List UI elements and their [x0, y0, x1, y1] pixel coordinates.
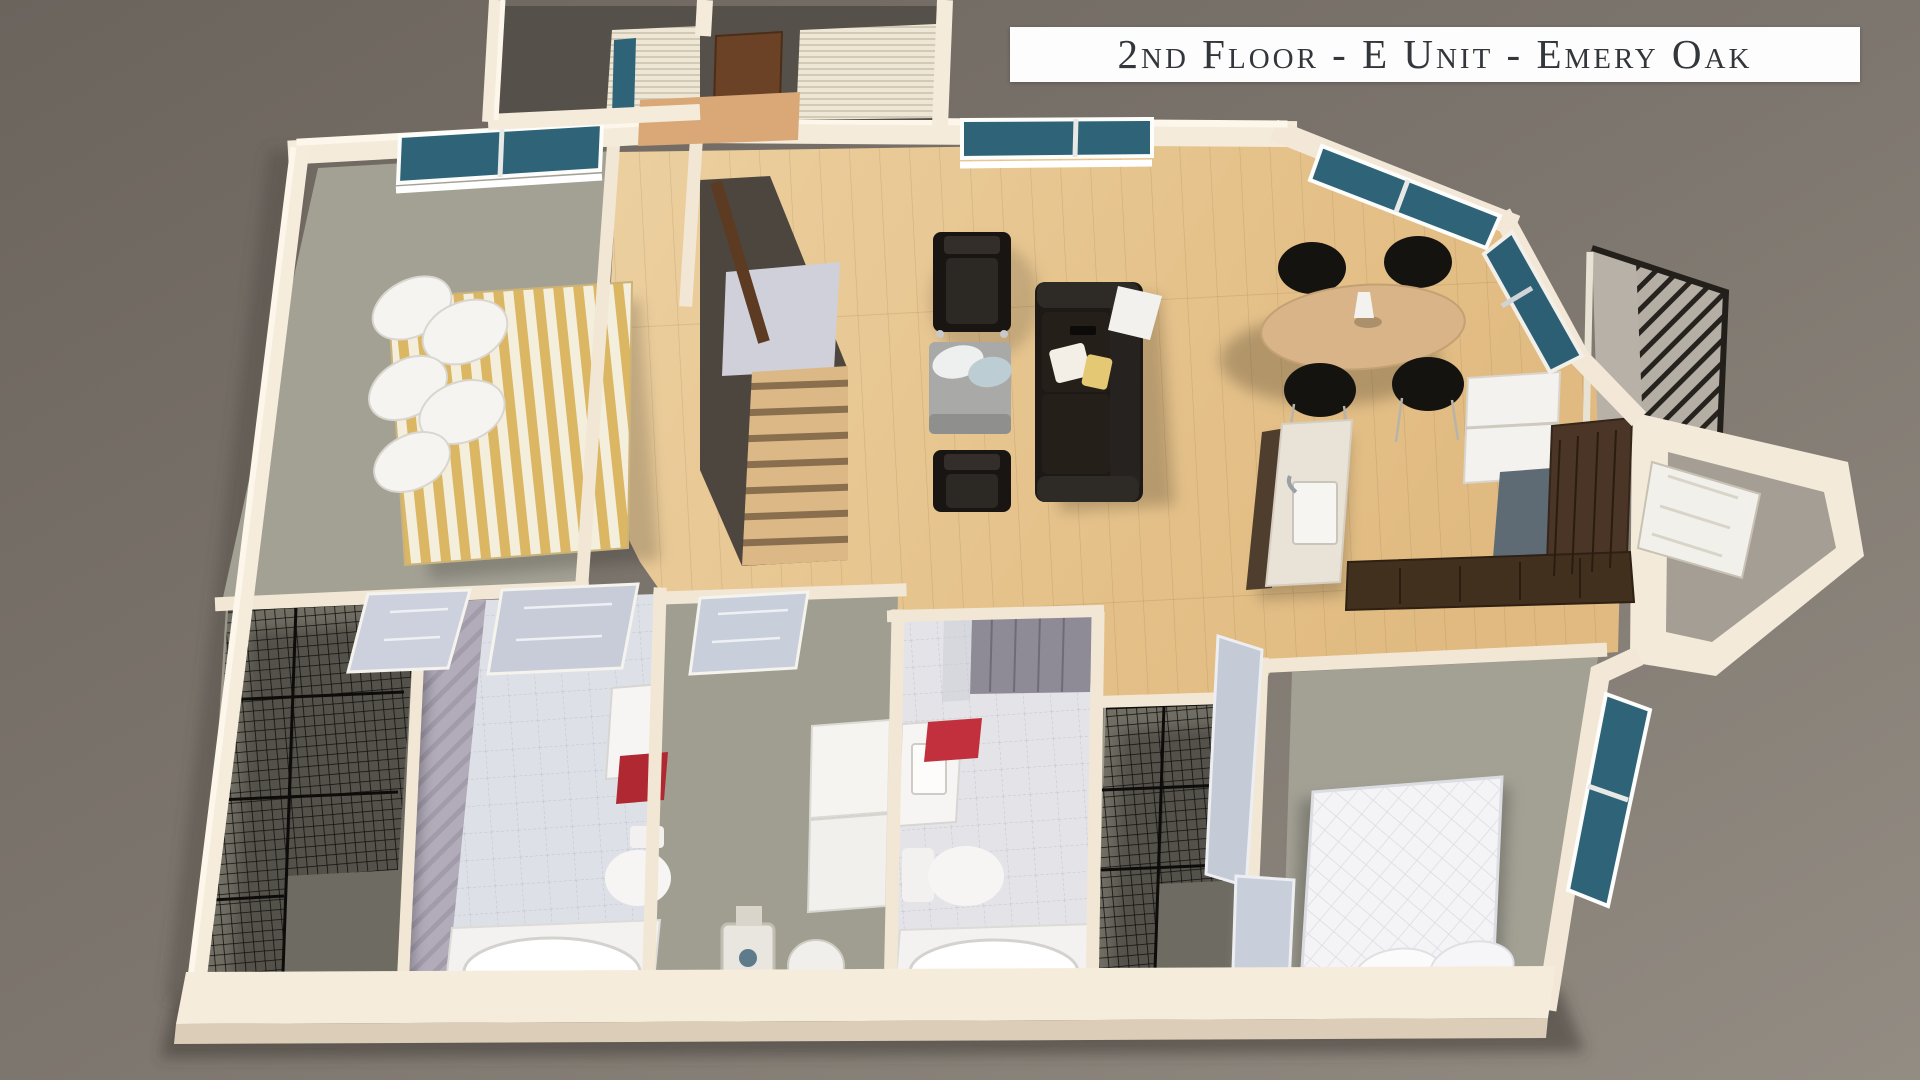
armchair-foot: [1000, 330, 1008, 338]
balcony-curb: [1586, 252, 1590, 444]
door-laundry: [690, 592, 808, 674]
window-bedroom-1: [396, 124, 602, 190]
wall-laundry-bath2: [890, 616, 898, 1000]
island-sink: [1293, 482, 1337, 544]
window-sill: [960, 163, 1152, 165]
sofa-remote: [1070, 326, 1096, 335]
window-living: [960, 119, 1152, 165]
toilet-2-bowl: [928, 846, 1004, 906]
window-glass: [962, 119, 1152, 158]
stair-block-shutter-right: [796, 24, 936, 120]
sofa: [1035, 282, 1175, 512]
floorplan-render: [0, 0, 1920, 1080]
ottoman-side: [929, 414, 1011, 434]
door-closet-1: [348, 590, 470, 672]
bedroom-1-bed: [358, 264, 660, 580]
title-banner: 2nd Floor - E Unit - Emery Oak: [1010, 27, 1860, 82]
armchair-foot: [936, 330, 944, 338]
armchair-back: [944, 236, 1000, 254]
ottoman: [929, 340, 1014, 434]
armchair-bottom: [933, 450, 1011, 512]
shower-2: [970, 612, 1094, 694]
sofa-arm-bottom: [1037, 476, 1139, 502]
toilet-1-bowl: [605, 850, 671, 906]
window-mullion: [500, 129, 502, 177]
kitchen-counter-horizontal: [1346, 552, 1634, 610]
wall-bottom: [176, 966, 1556, 1024]
water-heater-top: [736, 906, 762, 926]
door-bathroom-1: [488, 584, 638, 674]
title-banner-text: 2nd Floor - E Unit - Emery Oak: [1118, 34, 1753, 75]
armchair-back: [944, 454, 1000, 470]
sofa-cushion: [1042, 394, 1110, 474]
stairs: [742, 366, 848, 566]
dryer: [808, 814, 888, 912]
washer: [810, 720, 890, 818]
window-stair-sliver: [612, 38, 636, 116]
shower-2-glass: [942, 617, 972, 702]
window-mullion: [1075, 119, 1076, 157]
armchair-seat: [946, 258, 998, 324]
towel-red-2: [924, 718, 982, 762]
dining-chair: [1278, 242, 1346, 294]
floorplan-scene: 2nd Floor - E Unit - Emery Oak: [0, 0, 1920, 1080]
wall-bath2-closet2: [1092, 618, 1098, 1000]
armchair-seat: [946, 474, 998, 508]
dining-chair: [1384, 236, 1452, 288]
water-heater-dial: [739, 949, 757, 967]
wall-bath2-top: [893, 611, 1098, 616]
toilet-2: [902, 846, 1004, 906]
armchair-top: [933, 232, 1011, 338]
